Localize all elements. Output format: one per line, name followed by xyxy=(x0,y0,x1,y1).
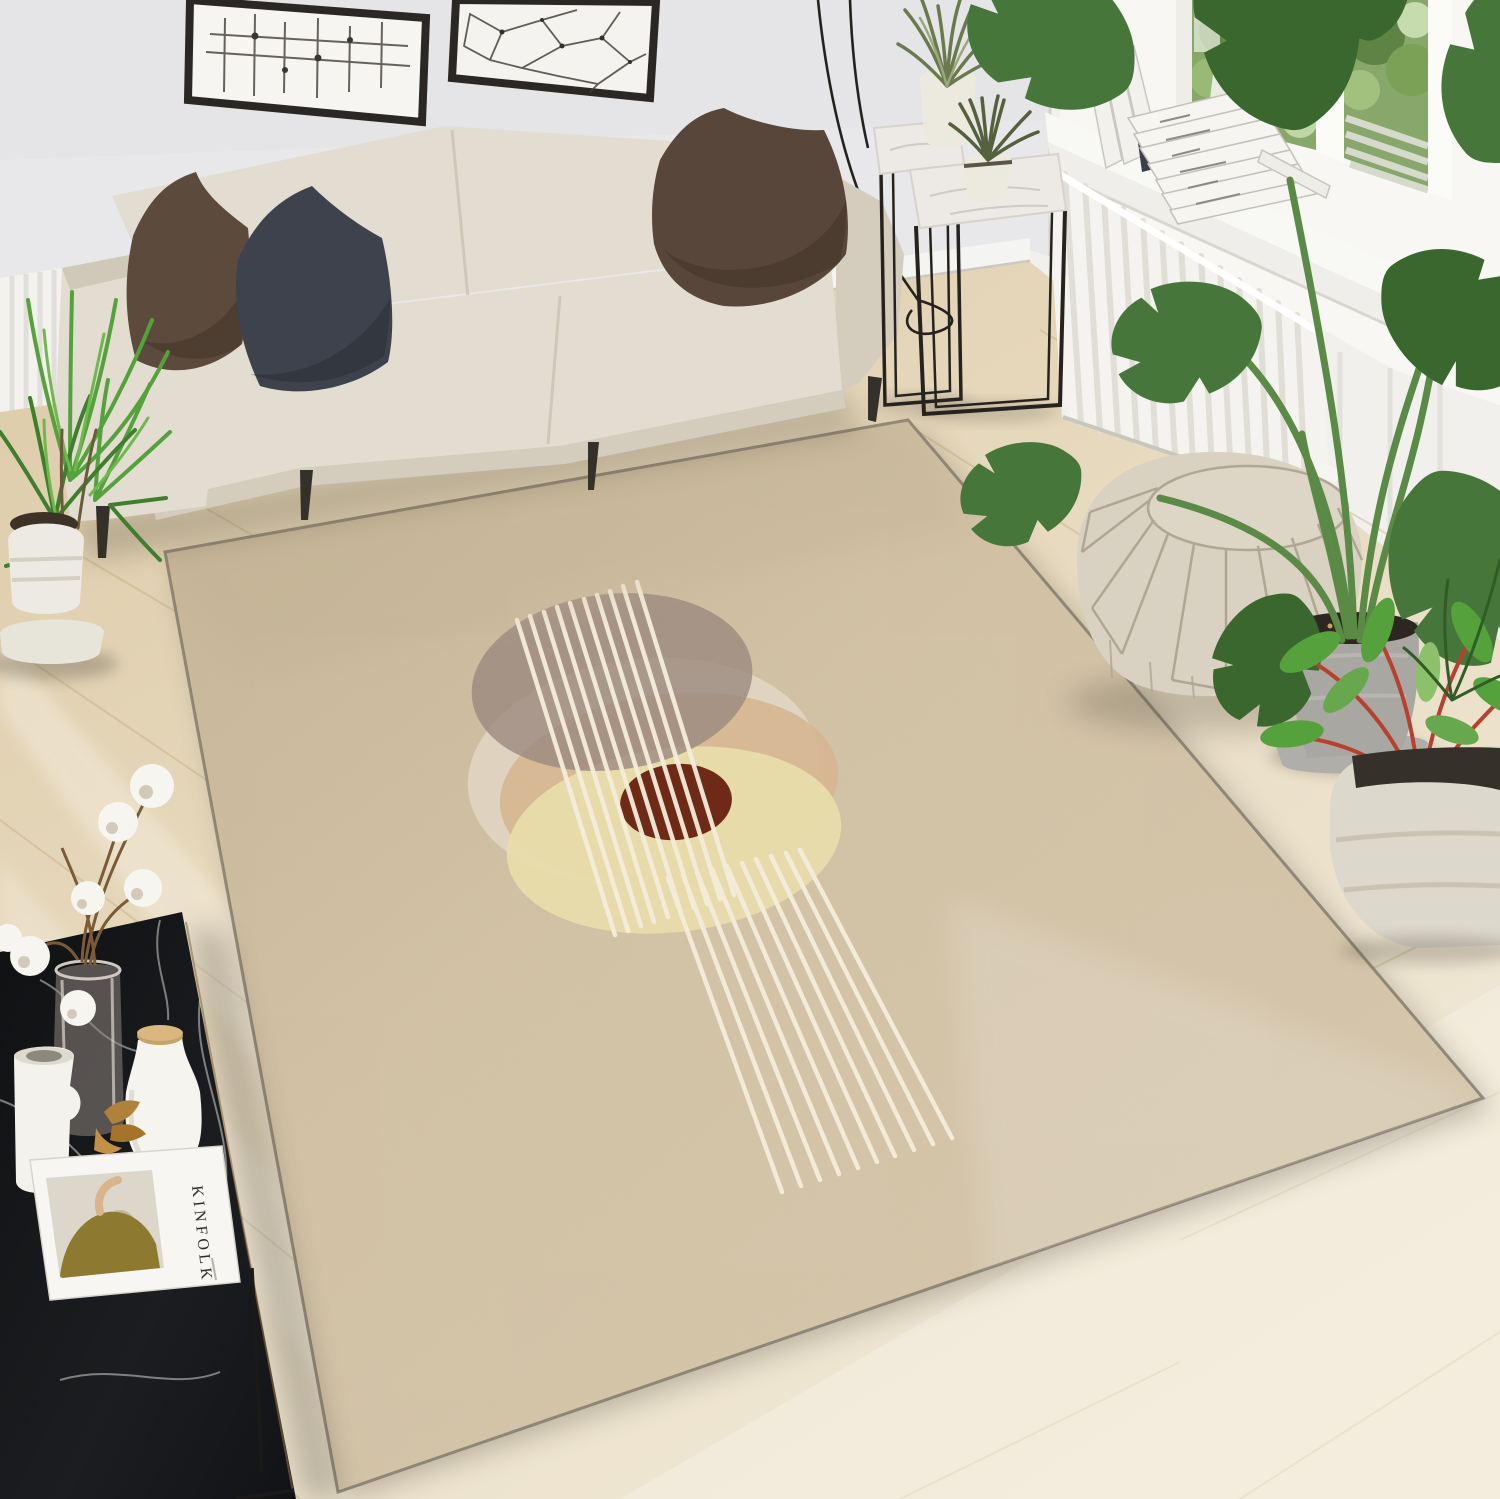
window-jamb-left xyxy=(1176,0,1192,116)
palm-saucer xyxy=(0,619,104,664)
wall-frame-lines-art xyxy=(188,0,426,122)
living-room-photo: Wro xyxy=(0,0,1500,1499)
scene: Wro xyxy=(0,0,1500,1499)
palm-pot xyxy=(8,524,84,615)
kinfolk-magazine: KINFOLK xyxy=(30,1146,240,1300)
wall-frame-voronoi-art xyxy=(452,0,656,98)
